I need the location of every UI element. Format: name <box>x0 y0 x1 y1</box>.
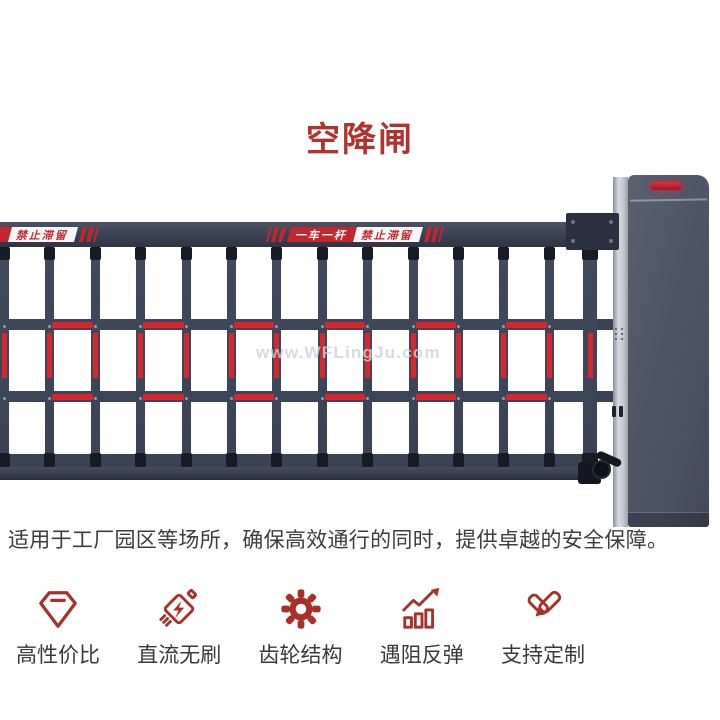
reflective-strip <box>506 394 546 400</box>
post-clamp <box>498 247 509 260</box>
led-indicator <box>650 182 682 190</box>
reflective-strip <box>143 394 183 400</box>
slash-mark <box>93 227 99 242</box>
slash-mark <box>438 227 444 242</box>
post-clamp <box>90 453 101 467</box>
motor-icon <box>156 586 202 632</box>
bolt <box>548 397 551 400</box>
reflective-strip <box>501 333 506 378</box>
slash-marks <box>266 227 286 242</box>
reflective-strip <box>52 322 92 328</box>
post-clamp <box>226 247 237 260</box>
fence-cell <box>418 402 454 454</box>
rebound-chart-icon <box>399 586 445 632</box>
post-clamp <box>453 247 464 260</box>
fence-cell <box>281 402 317 454</box>
fence-cell <box>508 330 544 391</box>
post-clamp <box>453 453 464 467</box>
decal-group: 一车一杆 禁止滞留 <box>0 227 104 242</box>
reflective-strip <box>229 333 234 378</box>
bolt <box>502 325 505 328</box>
fence-cell <box>191 247 227 319</box>
fence-cell <box>54 330 90 391</box>
fence-cell <box>9 402 45 454</box>
fence-cell <box>145 247 181 319</box>
mid-rail-stub <box>597 391 614 402</box>
reflective-strip <box>456 333 461 378</box>
decal-no-lingering: 禁止滞留 <box>353 227 423 242</box>
post-clamp <box>544 247 555 260</box>
bolt <box>230 325 233 328</box>
reflective-strip <box>234 394 274 400</box>
post-clamp <box>498 453 509 467</box>
fence-cell <box>236 247 272 319</box>
post-clamp <box>408 247 419 260</box>
post-clamp <box>181 247 192 260</box>
bolt <box>3 325 6 328</box>
bolt <box>321 325 324 328</box>
bolt <box>609 220 613 224</box>
decal-no-lingering: 禁止滞留 <box>8 227 78 242</box>
fence-cell <box>372 247 408 319</box>
product-description: 适用于工厂园区等场所，确保高效通行的同时，提供卓越的安全保障。 <box>8 524 668 554</box>
post-clamp <box>135 247 146 260</box>
watermark: www.WFLingJu.com <box>256 343 441 363</box>
fence-cell <box>508 402 544 454</box>
gem-icon <box>35 586 81 632</box>
pen-icon <box>520 586 566 632</box>
bolt <box>457 325 460 328</box>
reflective-strip <box>416 322 456 328</box>
reflective-strip <box>184 333 189 378</box>
post-clamp <box>271 453 282 467</box>
post-clamp <box>44 247 55 260</box>
slash-marks <box>79 227 99 242</box>
feature-label: 齿轮结构 <box>259 639 343 669</box>
fence-cell <box>54 402 90 454</box>
bolt <box>94 325 97 328</box>
bolt <box>457 397 460 400</box>
vent-dot <box>621 338 623 340</box>
post-clamp <box>271 247 282 260</box>
fence-cell <box>9 247 45 319</box>
vent-dot <box>615 328 617 330</box>
bolt <box>94 397 97 400</box>
reflective-strip <box>138 333 143 378</box>
fence-cell <box>100 330 136 391</box>
bolt <box>139 397 142 400</box>
mount-bracket <box>566 213 619 250</box>
bolt <box>321 397 324 400</box>
reflective-strip <box>416 394 456 400</box>
reflective-strip <box>325 394 365 400</box>
reflective-strip <box>52 394 92 400</box>
fence-cell <box>463 402 499 454</box>
bolt <box>412 325 415 328</box>
reflective-strip <box>93 333 98 378</box>
vent-slot <box>619 406 623 417</box>
feature-item: 齿轮结构 <box>251 586 351 669</box>
reflective-strip <box>325 322 365 328</box>
bolt <box>275 397 278 400</box>
post-clamp <box>362 453 373 467</box>
fence-cell <box>9 330 45 391</box>
bolt <box>571 239 575 243</box>
feature-label: 高性价比 <box>16 639 100 669</box>
fence-cell <box>554 402 583 454</box>
mid-rail-stub <box>597 319 614 330</box>
fence-cell <box>463 330 499 391</box>
vent-dot <box>615 333 617 335</box>
feature-item: 支持定制 <box>493 586 593 669</box>
post-clamp <box>44 453 55 467</box>
boom-bottom-rail <box>0 467 601 480</box>
reflective-strip <box>2 333 7 378</box>
cabinet-base <box>628 513 709 527</box>
fence-cell <box>327 247 363 319</box>
post-clamp <box>362 247 373 260</box>
post-clamp <box>0 247 10 260</box>
fence-cell <box>554 247 583 319</box>
fence-cell <box>418 247 454 319</box>
slash-mark <box>278 227 286 242</box>
feature-item: 高性价比 <box>8 586 108 669</box>
pivot-joint <box>592 460 611 479</box>
bolt <box>3 397 6 400</box>
post-clamp <box>0 453 10 467</box>
post-clamp <box>317 247 328 260</box>
decal-one-car-one-pole: 一车一杆 <box>287 227 357 242</box>
bolt <box>412 397 415 400</box>
vent-dot <box>621 328 623 330</box>
feature-label: 遇阻反弹 <box>380 639 464 669</box>
gear-icon <box>278 586 324 632</box>
feature-item: 直流无刷 <box>129 586 229 669</box>
bolt <box>502 397 505 400</box>
bolt <box>185 325 188 328</box>
cabinet-seam <box>630 198 707 201</box>
reflective-strip <box>547 333 552 378</box>
fence-cell <box>145 402 181 454</box>
reflective-strip <box>234 322 274 328</box>
reflective-strip <box>506 322 546 328</box>
post-clamp <box>90 247 101 260</box>
bolt <box>185 397 188 400</box>
product-page: 空降闸 一车一杆 禁止滞留 一车一杆 禁止滞留 <box>0 0 720 720</box>
bolt <box>230 397 233 400</box>
vent-dot <box>615 338 617 340</box>
feature-label: 支持定制 <box>501 639 585 669</box>
fence-cell <box>191 330 227 391</box>
barrier-cabinet <box>628 175 709 527</box>
post-clamp <box>317 453 328 467</box>
post-clamp <box>226 453 237 467</box>
bolt <box>48 397 51 400</box>
fence-cell <box>372 402 408 454</box>
fence-cell <box>463 247 499 319</box>
post-clamp <box>135 453 146 467</box>
fence-cell <box>236 402 272 454</box>
bolt <box>609 239 613 243</box>
bolt <box>275 325 278 328</box>
post-clamp <box>181 453 192 467</box>
post-clamp <box>544 453 555 467</box>
post-clamp <box>408 453 419 467</box>
fence-cell <box>54 247 90 319</box>
vent-dot <box>621 333 623 335</box>
fence-cell <box>145 330 181 391</box>
fence-cell <box>100 247 136 319</box>
reflective-strip <box>143 322 183 328</box>
fence-cell <box>327 402 363 454</box>
feature-label: 直流无刷 <box>137 639 221 669</box>
bolt <box>571 220 575 224</box>
feature-item: 遇阻反弹 <box>372 586 472 669</box>
fence-cell <box>100 402 136 454</box>
fence-cell <box>281 247 317 319</box>
boom-top-rail: 一车一杆 禁止滞留 一车一杆 禁止滞留 <box>0 222 570 247</box>
bolt <box>139 325 142 328</box>
features-row: 高性价比直流无刷齿轮结构遇阻反弹支持定制 <box>8 586 593 669</box>
fence-cell <box>554 330 583 391</box>
bolt <box>548 325 551 328</box>
bolt <box>366 325 369 328</box>
reflective-strip <box>588 333 593 378</box>
slash-marks <box>424 227 444 242</box>
vent-slot <box>612 406 616 417</box>
decal-group: 一车一杆 禁止滞留 <box>261 227 449 242</box>
bolt <box>48 325 51 328</box>
fence-cell <box>508 247 544 319</box>
reflective-strip <box>47 333 52 378</box>
fence-cell <box>191 402 227 454</box>
bolt <box>366 397 369 400</box>
